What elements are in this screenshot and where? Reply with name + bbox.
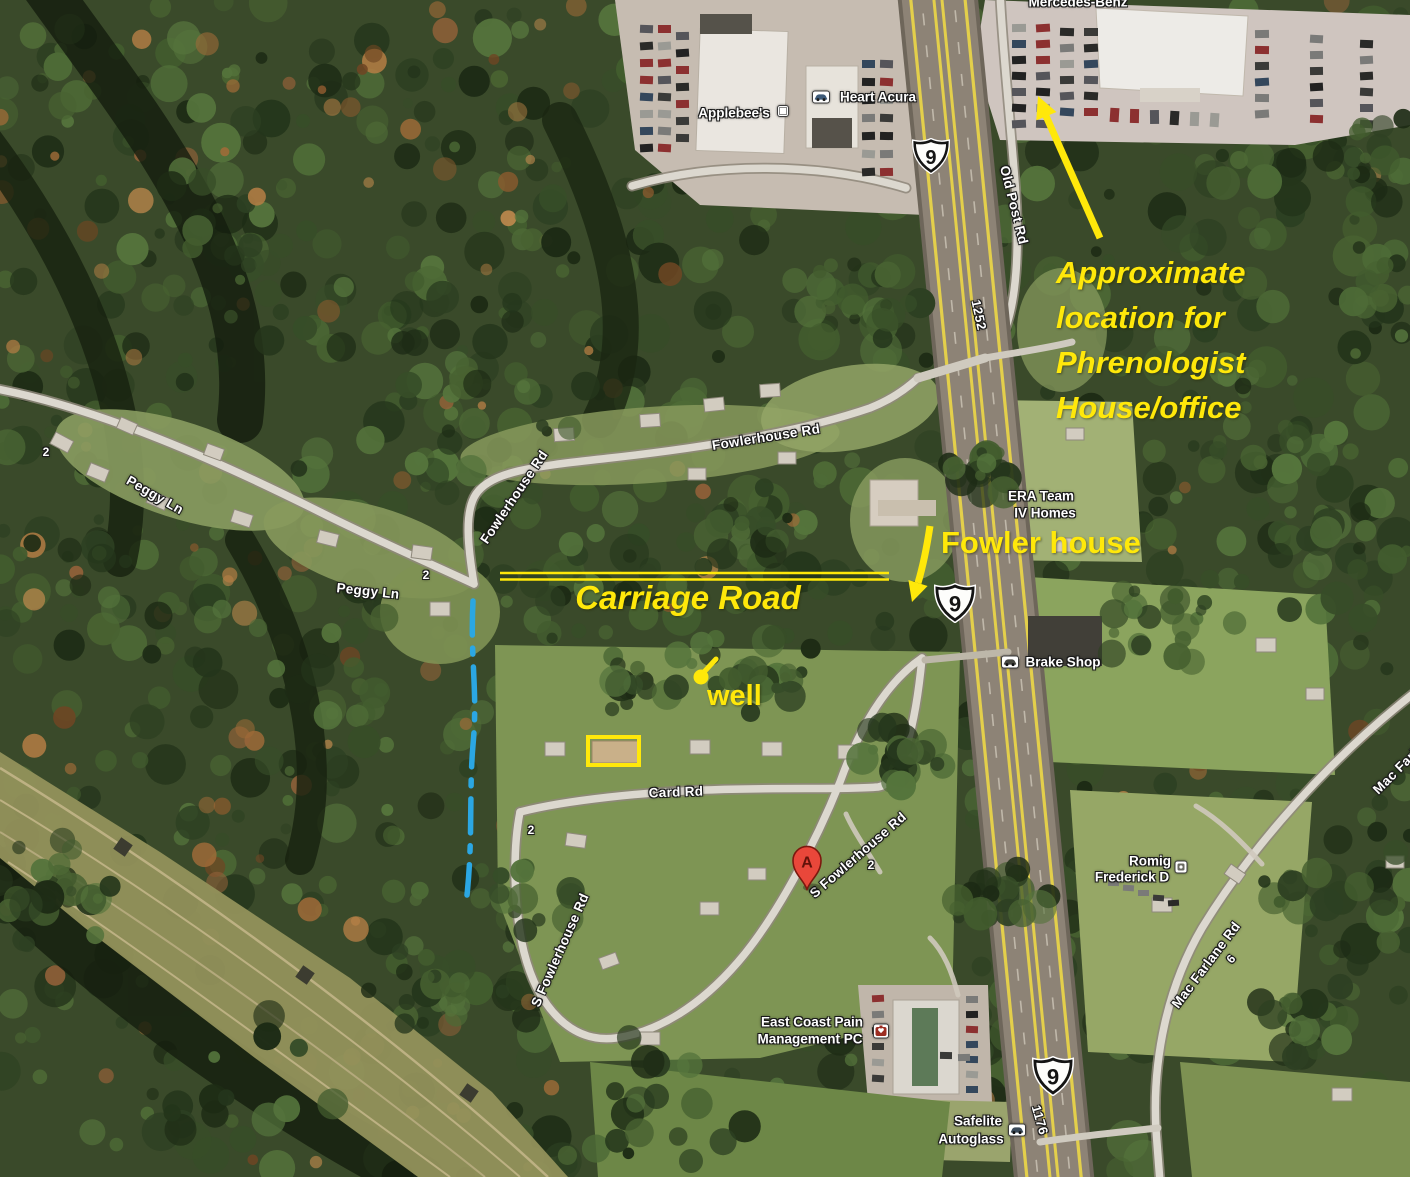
poi-label-applebees: Applebee's: [698, 106, 769, 121]
us-route-9-shield-middle: 9: [934, 583, 976, 623]
us-route-9-shield-bottom: 9: [1032, 1056, 1074, 1096]
poi-label-romig-line1: Romig: [1129, 854, 1171, 869]
map-pin-marker-a[interactable]: A: [790, 842, 824, 890]
applebees-icon: [777, 105, 789, 117]
waypoint-2-s-fowlerhouse: 2: [868, 858, 875, 872]
safelite-car-icon: [1008, 1124, 1026, 1137]
fowler-house-annotation-text: Fowler house: [941, 525, 1141, 561]
phrenologist-annotation-text: Approximate location for Phrenologist Ho…: [1056, 250, 1245, 430]
phrenologist-line-2: location for: [1056, 295, 1245, 340]
poi-label-romig-line2: Frederick D: [1095, 870, 1169, 885]
phrenologist-line-4: House/office: [1056, 385, 1245, 430]
poi-label-safelite-line2: Autoglass: [938, 1132, 1003, 1147]
waypoint-2-peggy-west: 2: [43, 445, 50, 459]
waypoint-2-peggy-east: 2: [423, 568, 430, 582]
satellite-map-canvas[interactable]: Peggy Ln Peggy Ln Fowlerhouse Rd Fowlerh…: [0, 0, 1410, 1177]
romig-poi-icon: [1175, 861, 1188, 874]
poi-label-safelite-line1: Safelite: [954, 1114, 1002, 1129]
poi-label-brake-shop: Brake Shop: [1025, 655, 1100, 670]
east-coast-medical-icon: [873, 1024, 889, 1039]
us-route-9-shield-top: 9: [912, 138, 950, 174]
shield-number: 9: [949, 592, 961, 617]
poi-label-mercedes-benz: Mercedes-Benz: [1028, 0, 1127, 10]
shield-number: 9: [925, 147, 936, 169]
heart-acura-car-icon: [812, 91, 830, 104]
marker-letter: A: [801, 854, 813, 871]
shield-number: 9: [1047, 1065, 1059, 1090]
carriage-road-annotation-text: Carriage Road: [575, 579, 801, 617]
poi-label-heart-acura: Heart Acura: [840, 90, 916, 105]
waypoint-2-card: 2: [528, 823, 535, 837]
poi-label-east-coast-line2: Management PC: [757, 1032, 862, 1047]
phrenologist-line-3: Phrenologist: [1056, 340, 1245, 385]
poi-label-era-team-line2: IV Homes: [1014, 506, 1076, 521]
poi-label-era-team-line1: ERA Team: [1008, 489, 1074, 504]
road-label-card-rd: Card Rd: [648, 784, 703, 801]
brake-shop-car-icon: [1001, 656, 1019, 669]
poi-label-east-coast-line1: East Coast Pain: [761, 1015, 863, 1030]
highlight-rectangle: [586, 735, 641, 767]
well-annotation-text: well: [707, 680, 762, 713]
phrenologist-line-1: Approximate: [1056, 250, 1245, 295]
